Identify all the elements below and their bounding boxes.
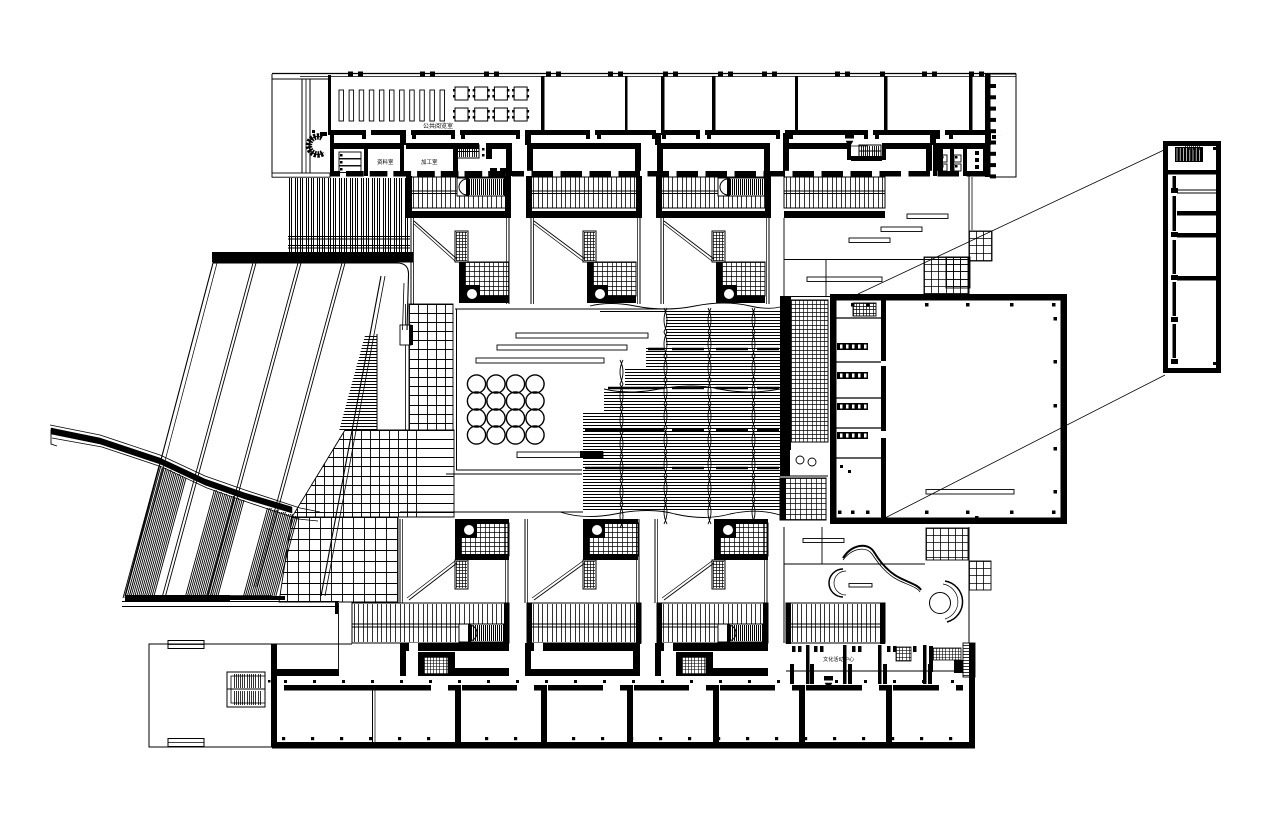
- svg-text:公共阅览室: 公共阅览室: [423, 122, 453, 130]
- svg-text:加工室: 加工室: [421, 158, 438, 166]
- svg-text:资料室: 资料室: [377, 158, 394, 166]
- svg-text:文化活动中心: 文化活动中心: [823, 655, 854, 663]
